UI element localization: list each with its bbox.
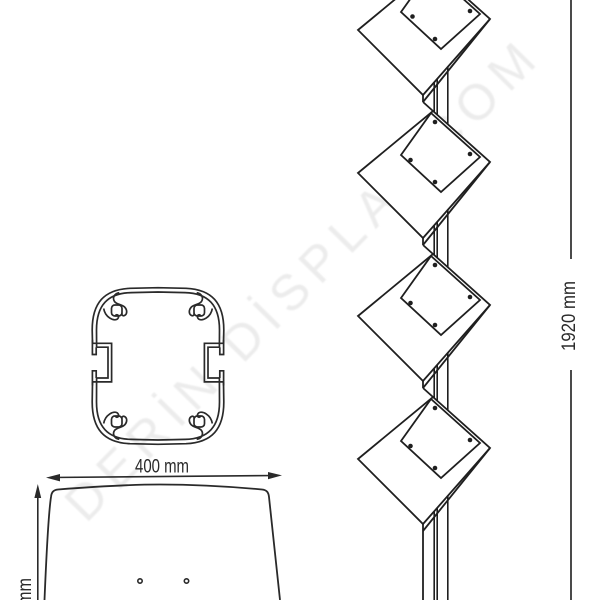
svg-text:1920 mm: 1920 mm xyxy=(559,281,580,351)
svg-text:400 mm: 400 mm xyxy=(135,457,189,478)
svg-text:mm: mm xyxy=(15,578,36,600)
